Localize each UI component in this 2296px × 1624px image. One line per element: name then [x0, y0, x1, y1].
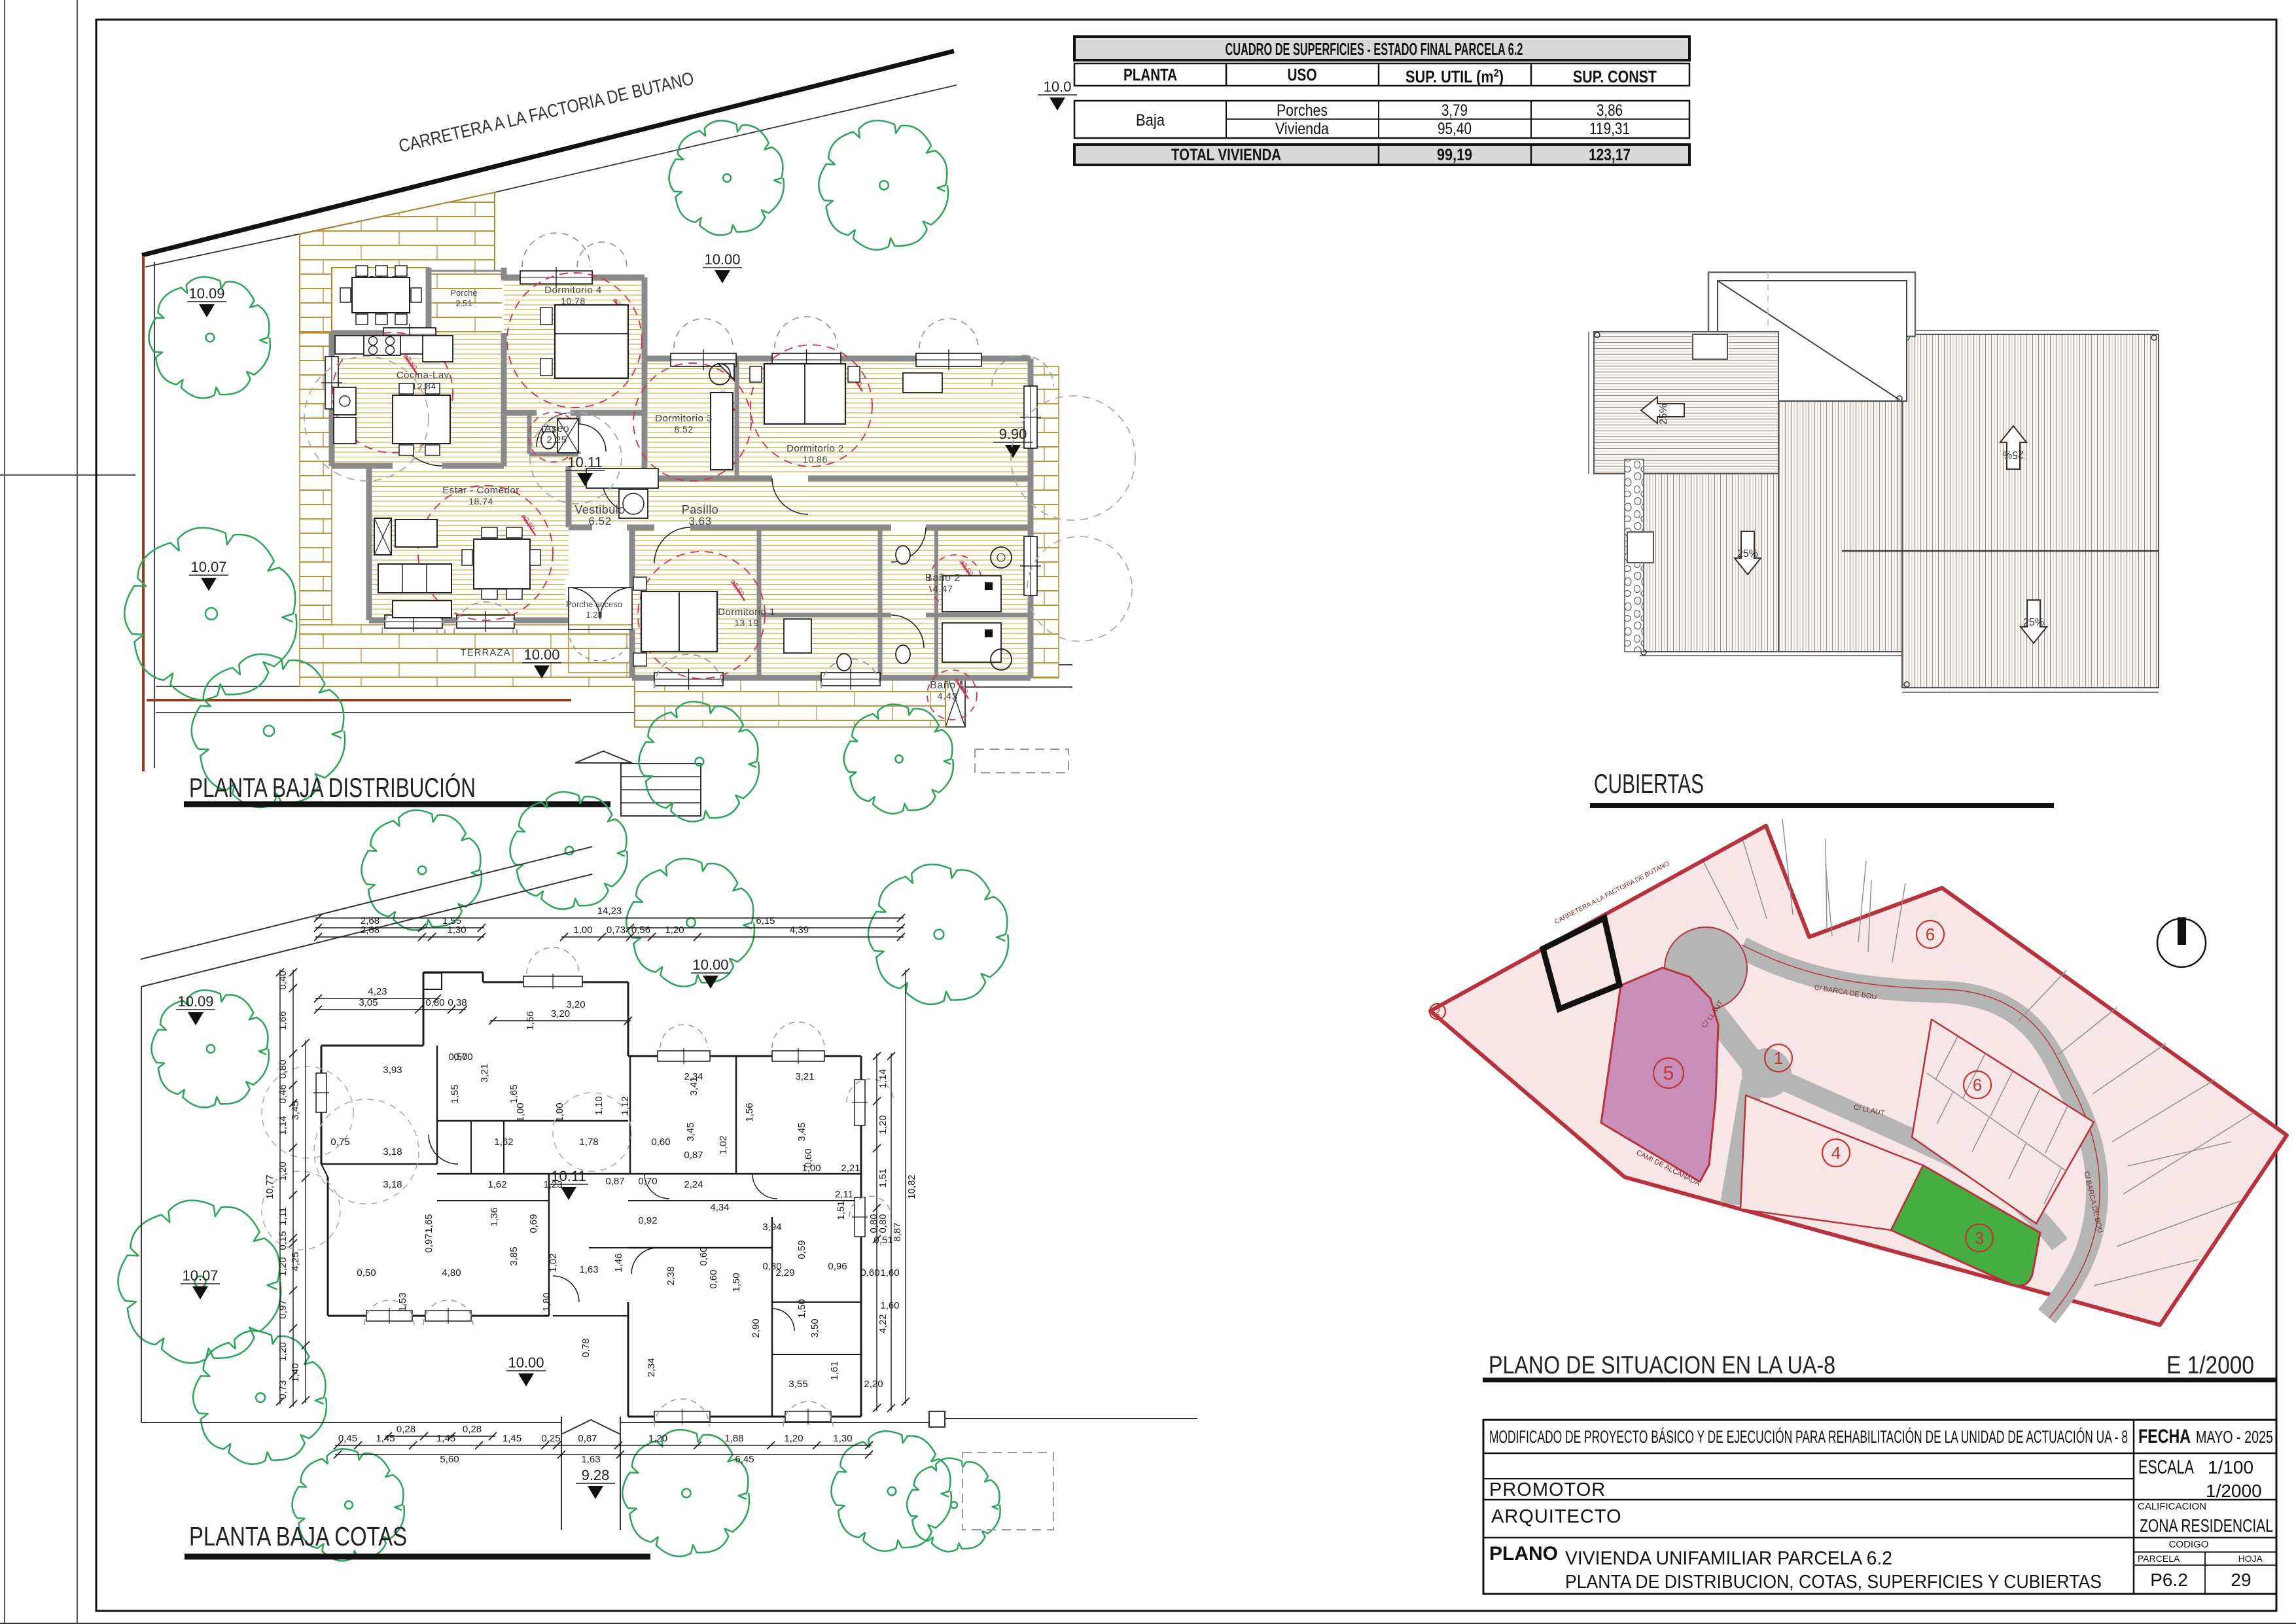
svg-text:1,60: 1,60: [880, 1267, 899, 1279]
svg-text:Porche acceso: Porche acceso: [566, 599, 622, 609]
svg-text:FECHA: FECHA: [2138, 1426, 2191, 1447]
svg-text:2,90: 2,90: [751, 1318, 762, 1337]
svg-text:0,87: 0,87: [578, 1433, 597, 1444]
svg-text:Dormitorio 2: Dormitorio 2: [786, 443, 844, 454]
svg-text:VIVIENDA UNIFAMILIAR PARCELA 6: VIVIENDA UNIFAMILIAR PARCELA 6.2: [1565, 1548, 1892, 1569]
svg-text:3,05: 3,05: [359, 997, 378, 1008]
svg-text:4,23: 4,23: [368, 986, 387, 997]
svg-text:MAYO - 2025: MAYO - 2025: [2196, 1427, 2273, 1447]
svg-text:1,88: 1,88: [724, 1433, 743, 1444]
svg-text:0,80: 0,80: [277, 1059, 289, 1078]
svg-text:1,02: 1,02: [718, 1135, 729, 1154]
svg-text:0,25: 0,25: [541, 1433, 560, 1444]
svg-text:5,60: 5,60: [440, 1454, 459, 1465]
svg-text:CALIFICACION: CALIFICACION: [2138, 1501, 2206, 1512]
svg-text:1,36: 1,36: [489, 1207, 500, 1226]
svg-text:1.28: 1.28: [586, 610, 602, 620]
svg-text:6: 6: [1973, 1075, 1982, 1095]
svg-text:1,50: 1,50: [731, 1273, 742, 1292]
svg-text:1,20: 1,20: [784, 1433, 803, 1444]
svg-text:HOJA: HOJA: [2238, 1553, 2263, 1564]
svg-text:10.09: 10.09: [188, 285, 224, 302]
svg-text:1,14: 1,14: [877, 1069, 889, 1088]
svg-text:9.28: 9.28: [582, 1467, 610, 1483]
svg-text:4.47: 4.47: [932, 584, 953, 595]
svg-text:Baja: Baja: [1136, 111, 1165, 130]
svg-text:PLANTA DE DISTRIBUCION, COTAS,: PLANTA DE DISTRIBUCION, COTAS, SUPERFICI…: [1565, 1572, 2102, 1593]
svg-text:1,62: 1,62: [487, 1179, 506, 1190]
svg-text:3,20: 3,20: [566, 999, 585, 1010]
svg-text:2,34: 2,34: [684, 1071, 703, 1082]
svg-text:8,87: 8,87: [892, 1222, 903, 1241]
svg-text:1/2000: 1/2000: [2206, 1481, 2262, 1501]
svg-text:CODIGO: CODIGO: [2169, 1539, 2209, 1550]
svg-text:10,77: 10,77: [264, 1174, 275, 1199]
svg-text:2,24: 2,24: [684, 1179, 703, 1190]
svg-text:6.52: 6.52: [588, 515, 611, 527]
svg-text:PARCELA: PARCELA: [2138, 1553, 2180, 1564]
svg-text:9.90: 9.90: [999, 426, 1027, 442]
svg-text:12.84: 12.84: [412, 381, 436, 391]
svg-text:0,28: 0,28: [397, 1424, 415, 1435]
svg-text:3: 3: [1975, 1228, 1984, 1248]
svg-text:Porches: Porches: [1277, 101, 1328, 120]
svg-text:3,45: 3,45: [685, 1122, 696, 1141]
svg-text:SUP. CONST: SUP. CONST: [1573, 67, 1657, 86]
svg-text:3,45: 3,45: [290, 1101, 301, 1120]
svg-text:1,14: 1,14: [277, 1116, 289, 1135]
svg-text:0,73: 0,73: [607, 925, 626, 936]
svg-text:PLANTA: PLANTA: [1123, 65, 1177, 84]
svg-text:Porche: Porche: [450, 288, 477, 298]
svg-text:0,87: 0,87: [684, 1150, 703, 1161]
svg-text:0,15: 0,15: [277, 1231, 289, 1250]
svg-text:1,20: 1,20: [648, 1433, 667, 1444]
svg-text:13.19: 13.19: [734, 618, 759, 628]
svg-text:0,60: 0,60: [708, 1269, 719, 1288]
svg-text:4,80: 4,80: [442, 1267, 461, 1279]
svg-text:2,38: 2,38: [665, 1266, 677, 1285]
svg-text:4,22: 4,22: [877, 1314, 889, 1333]
svg-text:3,45: 3,45: [796, 1122, 807, 1141]
svg-text:4,25: 4,25: [290, 1252, 301, 1271]
svg-text:3,93: 3,93: [383, 1065, 402, 1076]
svg-text:PLANO: PLANO: [1489, 1543, 1558, 1564]
svg-text:2,21: 2,21: [841, 1163, 860, 1174]
svg-text:Estar - Comedor: Estar - Comedor: [442, 485, 520, 496]
svg-text:25%: 25%: [2003, 449, 2024, 460]
svg-text:CUADRO DE SUPERFICIES - ESTADO: CUADRO DE SUPERFICIES - ESTADO FINAL PAR…: [1226, 39, 1523, 59]
svg-text:6,45: 6,45: [735, 1454, 754, 1465]
svg-text:0,60: 0,60: [803, 1148, 814, 1167]
svg-text:1,62: 1,62: [494, 1137, 513, 1148]
svg-text:1/100: 1/100: [2208, 1457, 2253, 1477]
svg-text:0,45: 0,45: [338, 1433, 357, 1444]
svg-text:1,56: 1,56: [525, 1011, 536, 1030]
svg-text:2.25: 2.25: [546, 434, 567, 446]
svg-text:0,28: 0,28: [463, 1424, 482, 1435]
svg-text:Dormitorio 1: Dormitorio 1: [718, 607, 775, 618]
svg-text:1,20: 1,20: [665, 925, 684, 936]
svg-text:Vivienda: Vivienda: [1275, 120, 1329, 138]
svg-text:10.07: 10.07: [182, 1267, 218, 1284]
svg-text:1,80: 1,80: [541, 1292, 552, 1311]
svg-text:3,21: 3,21: [795, 1071, 814, 1082]
svg-text:1,11: 1,11: [277, 1207, 289, 1226]
svg-text:0,70: 0,70: [638, 1176, 657, 1187]
svg-text:ARQUITECTO: ARQUITECTO: [1491, 1506, 1622, 1527]
svg-text:0,30: 0,30: [762, 1261, 781, 1272]
svg-text:0,73: 0,73: [277, 1380, 289, 1399]
svg-text:5: 5: [1663, 1063, 1674, 1084]
svg-text:3,21: 3,21: [479, 1063, 490, 1082]
svg-text:0,60: 0,60: [698, 1246, 709, 1265]
svg-text:0,96: 0,96: [828, 1261, 847, 1272]
svg-text:0,60: 0,60: [651, 1137, 670, 1148]
svg-text:0,97: 0,97: [277, 1299, 289, 1318]
svg-text:ZONA RESIDENCIAL: ZONA RESIDENCIAL: [2140, 1515, 2273, 1536]
svg-text:CUBIERTAS: CUBIERTAS: [1594, 768, 1704, 799]
svg-text:Baño 2: Baño 2: [925, 573, 961, 584]
svg-text:2,34: 2,34: [646, 1358, 657, 1377]
svg-text:0,50: 0,50: [448, 1051, 467, 1063]
svg-text:1,63: 1,63: [581, 1454, 600, 1465]
svg-text:ESCALA: ESCALA: [2138, 1456, 2194, 1478]
svg-text:1,00: 1,00: [554, 1103, 565, 1121]
svg-text:1,30: 1,30: [833, 1433, 852, 1444]
svg-text:25%: 25%: [1658, 404, 1669, 425]
svg-text:1,20: 1,20: [877, 1115, 889, 1134]
svg-text:95,40: 95,40: [1438, 120, 1472, 138]
svg-text:3,85: 3,85: [508, 1246, 520, 1265]
svg-text:PLANTA BAJA COTAS: PLANTA BAJA COTAS: [189, 1521, 407, 1551]
svg-text:10.11: 10.11: [551, 1168, 586, 1184]
svg-text:Vestibulo: Vestibulo: [574, 503, 626, 516]
svg-text:0,40: 0,40: [277, 970, 289, 989]
svg-text:14,23: 14,23: [597, 906, 622, 917]
svg-text:3,94: 3,94: [762, 1222, 781, 1233]
svg-text:1,40: 1,40: [290, 1363, 301, 1382]
svg-text:6,15: 6,15: [756, 915, 775, 927]
svg-text:29: 29: [2231, 1570, 2251, 1590]
svg-text:MODIFICADO DE PROYECTO BÁSICO: MODIFICADO DE PROYECTO BÁSICO Y DE EJECU…: [1489, 1426, 2128, 1447]
svg-text:25%: 25%: [1737, 548, 1758, 559]
svg-text:3,55: 3,55: [788, 1379, 807, 1390]
svg-text:0,78: 0,78: [580, 1338, 592, 1357]
svg-text:2,11: 2,11: [835, 1189, 853, 1200]
svg-text:0,56: 0,56: [631, 925, 650, 936]
svg-text:Cocina-Lav.: Cocina-Lav.: [397, 370, 451, 381]
svg-text:10.00: 10.00: [523, 646, 559, 663]
svg-text:10.00: 10.00: [692, 957, 728, 973]
svg-text:10.0: 10.0: [1044, 79, 1072, 95]
svg-text:3.63: 3.63: [688, 515, 711, 527]
svg-text:119,31: 119,31: [1589, 120, 1630, 138]
svg-text:4,34: 4,34: [710, 1202, 729, 1213]
svg-text:1,50: 1,50: [796, 1299, 807, 1318]
svg-text:2.51: 2.51: [455, 298, 472, 308]
svg-text:4.43: 4.43: [937, 691, 957, 702]
svg-text:0,80: 0,80: [868, 1214, 879, 1233]
svg-text:1,56: 1,56: [744, 1103, 755, 1121]
svg-text:Dormitorio 4: Dormitorio 4: [544, 285, 602, 296]
svg-text:3,86: 3,86: [1597, 101, 1623, 120]
svg-text:PLANO DE SITUACION EN LA UA-8: PLANO DE SITUACION EN LA UA-8: [1489, 1352, 1835, 1379]
svg-text:4: 4: [1831, 1143, 1841, 1163]
svg-text:10.09: 10.09: [177, 993, 213, 1010]
svg-text:1,65: 1,65: [508, 1084, 520, 1103]
svg-text:2,20: 2,20: [864, 1379, 883, 1390]
svg-text:PLANTA BAJA DISTRIBUCIÓN: PLANTA BAJA DISTRIBUCIÓN: [189, 772, 476, 803]
svg-text:USO: USO: [1288, 65, 1317, 84]
svg-text:3,50: 3,50: [809, 1318, 821, 1337]
svg-text:10.00: 10.00: [704, 251, 740, 268]
svg-text:1,20: 1,20: [277, 1342, 289, 1361]
svg-text:123,17: 123,17: [1589, 146, 1631, 164]
svg-text:0,59: 0,59: [796, 1240, 807, 1259]
svg-text:1,20: 1,20: [277, 1257, 289, 1276]
svg-text:1,60: 1,60: [880, 1300, 899, 1311]
svg-text:1,51: 1,51: [836, 1201, 847, 1220]
svg-text:1,10: 1,10: [593, 1096, 605, 1115]
svg-text:PROMOTOR: PROMOTOR: [1489, 1479, 1606, 1500]
svg-text:Pasillo: Pasillo: [682, 503, 719, 516]
svg-text:0,69: 0,69: [528, 1214, 539, 1233]
svg-text:1,65: 1,65: [423, 1214, 434, 1233]
svg-text:18.74: 18.74: [468, 496, 493, 506]
svg-text:3,18: 3,18: [383, 1179, 402, 1190]
svg-text:10.86: 10.86: [803, 454, 828, 465]
svg-text:10.07: 10.07: [190, 559, 226, 575]
svg-text:1,78: 1,78: [579, 1137, 598, 1148]
svg-text:1,51: 1,51: [877, 1169, 889, 1188]
svg-text:1: 1: [1774, 1048, 1783, 1068]
svg-text:1,66: 1,66: [277, 1011, 289, 1030]
svg-text:2: 2: [1435, 1006, 1441, 1017]
svg-text:1,00: 1,00: [573, 925, 592, 936]
svg-text:TOTAL VIVIENDA: TOTAL VIVIENDA: [1171, 146, 1281, 164]
svg-text:TERRAZA: TERRAZA: [460, 647, 510, 658]
svg-text:Aseo: Aseo: [544, 423, 569, 434]
svg-text:SUP. UTIL (m2): SUP. UTIL (m2): [1405, 67, 1504, 87]
svg-text:E 1/2000: E 1/2000: [2166, 1352, 2254, 1379]
svg-text:0,80: 0,80: [425, 997, 444, 1008]
svg-text:0,60: 0,60: [860, 1267, 879, 1279]
svg-text:0,75: 0,75: [330, 1137, 349, 1148]
svg-text:0,38: 0,38: [448, 997, 467, 1008]
svg-text:8.52: 8.52: [674, 424, 693, 434]
svg-text:3,18: 3,18: [383, 1146, 402, 1157]
svg-text:Dormitorio 3: Dormitorio 3: [655, 413, 713, 424]
svg-text:1,61: 1,61: [829, 1361, 840, 1380]
svg-text:0,97: 0,97: [423, 1233, 434, 1252]
svg-text:1,20: 1,20: [277, 1161, 289, 1180]
svg-text:1,02: 1,02: [548, 1253, 559, 1272]
svg-text:10,82: 10,82: [906, 1174, 917, 1199]
svg-text:1,00: 1,00: [515, 1103, 526, 1121]
svg-text:1,55: 1,55: [450, 1084, 461, 1103]
svg-text:Baño 1: Baño 1: [930, 680, 965, 691]
svg-text:0,87: 0,87: [605, 1176, 624, 1187]
svg-text:2,68: 2,68: [361, 925, 380, 936]
svg-text:25%: 25%: [2023, 617, 2044, 628]
svg-text:0,46: 0,46: [277, 1084, 289, 1103]
svg-text:0,50: 0,50: [357, 1267, 376, 1279]
svg-text:6: 6: [1926, 925, 1935, 944]
svg-text:3,79: 3,79: [1441, 101, 1468, 120]
svg-text:10.78: 10.78: [561, 296, 586, 306]
svg-text:1,46: 1,46: [613, 1253, 624, 1272]
svg-text:1,63: 1,63: [579, 1264, 598, 1275]
svg-text:0,51: 0,51: [874, 1235, 892, 1246]
svg-text:1,45: 1,45: [503, 1433, 521, 1444]
svg-text:99,19: 99,19: [1437, 146, 1472, 164]
svg-text:4,39: 4,39: [790, 925, 809, 936]
svg-text:10.11: 10.11: [567, 454, 602, 470]
svg-text:10.00: 10.00: [508, 1354, 544, 1371]
svg-text:1,30: 1,30: [447, 925, 466, 936]
svg-text:0,92: 0,92: [638, 1215, 657, 1226]
svg-text:1,53: 1,53: [397, 1292, 408, 1311]
svg-text:1,12: 1,12: [620, 1096, 631, 1115]
svg-text:P6.2: P6.2: [2150, 1570, 2188, 1590]
